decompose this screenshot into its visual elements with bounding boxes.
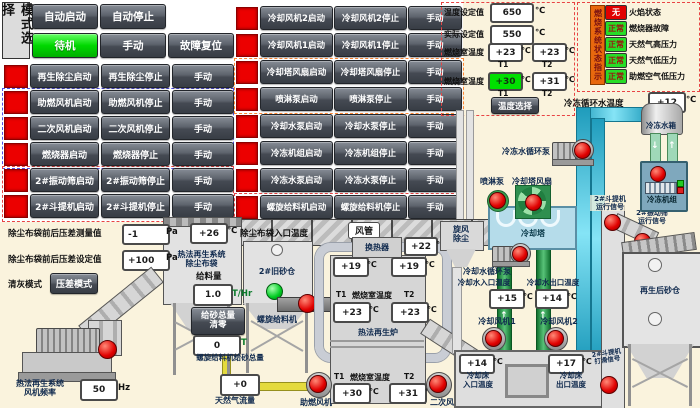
furnace-top-t1-unit: ℃ [367, 260, 377, 269]
elevator-manual-button[interactable]: 手动 [172, 194, 234, 218]
chiller-green-lamp [677, 180, 684, 187]
indicator-sec-fan [4, 117, 28, 140]
cool-fan2-label: 冷却风机2 [536, 317, 582, 326]
temp-setpoint-value[interactable]: 650 [490, 3, 534, 23]
temp-select-button[interactable]: 温度选择 [491, 97, 539, 114]
feed-total-label: 螺旋给料机给砂总量 [188, 354, 272, 363]
cooling-bed-window [505, 364, 549, 398]
chilled-water-temp-unit: ℃ [686, 95, 696, 105]
combustion-status-title: 燃烧系统状态指示 [590, 5, 605, 85]
burner-manual-button[interactable]: 手动 [172, 142, 234, 166]
furnace-mid-t1-unit: ℃ [369, 305, 379, 314]
hmi-screen: 模式选择 自动启动 自动停止 待机 手动 故障复位 再生除尘启动 再生除尘停止 … [0, 0, 700, 408]
chiller-stop-button[interactable]: 冷冻机组停止 [334, 141, 407, 165]
flow-up-arrow-icon: ↑ [668, 142, 676, 151]
temp-setpoint-label: 温度设定值 [444, 7, 484, 18]
bed-in-temp-unit: ℃ [493, 357, 503, 366]
chamber-temp-upper-label: 燃烧室温度 [444, 47, 484, 58]
mode-select-title: 模式选择 [2, 2, 30, 59]
cool-fan1-stop-button[interactable]: 冷却风机1停止 [334, 33, 407, 57]
furnace-low-t1-unit: ℃ [369, 387, 379, 396]
chilled-pump-start-button[interactable]: 冷冻水泵启动 [260, 168, 333, 192]
regen-fan-indicator [98, 340, 117, 359]
sec-fan-manual-button[interactable]: 手动 [172, 116, 234, 140]
burner-fault-badge: 正常 [605, 21, 627, 36]
feed-rate-value: 1.0 [193, 284, 233, 306]
auto-stop-button[interactable]: 自动停止 [100, 4, 166, 29]
clean-mode-label: 清灰模式 [8, 278, 42, 290]
feed-total-unit: T [241, 338, 247, 348]
indicator-spray-pump [236, 88, 258, 111]
furnace-mid-t2-value: +23 [391, 302, 429, 323]
indicator-comb-fan [4, 91, 28, 114]
indicator-tower-fan [236, 61, 258, 84]
chamber-temp-lower-label: 燃烧室温度 [444, 76, 484, 87]
standby-button[interactable]: 待机 [32, 33, 98, 58]
manual-mode-button[interactable]: 手动 [100, 33, 166, 58]
screen-start-button[interactable]: 2#振动筛启动 [30, 168, 99, 192]
cooling-tower-label: 冷却塔 [516, 229, 550, 238]
indicator-cool-fan1 [236, 34, 258, 57]
silo-porthole [648, 258, 662, 272]
chamber-upper-t2-tag: T2 [542, 60, 552, 69]
spray-pump-start-button[interactable]: 喷淋泵启动 [260, 87, 333, 111]
screw-feeder-manual-button[interactable]: 手动 [408, 195, 462, 219]
indicator-chilled-pump [236, 169, 258, 192]
elevator-run-indicator [604, 214, 621, 231]
cool-fan2-stop-button[interactable]: 冷却风机2停止 [334, 6, 407, 30]
chilled-water-temp-label: 冷冻循环水温度 [564, 97, 624, 109]
sec-fan-indicator [429, 375, 447, 393]
indicator-chiller [236, 142, 258, 165]
silo-porthole [648, 312, 662, 326]
comb-fan-start-button[interactable]: 助燃风机启动 [30, 90, 99, 114]
indicator-screen [4, 169, 28, 192]
water-in-label: 冷却水入口温度 [455, 279, 513, 288]
bed-in-temp-label: 冷却床 入口温度 [455, 372, 501, 389]
screen-stop-button[interactable]: 2#振动筛停止 [101, 168, 170, 192]
chilled-pump-base [552, 159, 594, 166]
chamber-upper-t1-unit: ℃ [521, 46, 531, 55]
furnace-divider [330, 346, 424, 348]
comb-air-low-pressure-label: 助燃空气低压力 [629, 71, 685, 82]
cool-pump-start-button[interactable]: 冷却水泵启动 [260, 114, 333, 138]
flame-state-badge: 无 [605, 5, 627, 20]
actual-temp-unit: ℃ [535, 28, 545, 38]
elevator-slip-indicator [600, 376, 618, 394]
furnace-low-chamber-label: 燃烧室温度 [350, 372, 390, 383]
furnace-name-label: 热法再生炉 [350, 328, 406, 337]
chamber-lower-t1-unit: ℃ [521, 75, 531, 84]
screw-feeder-start-button[interactable]: 螺旋给料机启动 [260, 195, 333, 219]
dp-measured-value: -1 [122, 224, 170, 245]
regen-sand-silo-label: 再生后砂仓 [628, 286, 692, 295]
chilled-pump-stop-button[interactable]: 冷冻水泵停止 [334, 168, 407, 192]
furnace-top-t1-value: +19 [333, 257, 369, 277]
chiller-manual-button[interactable]: 手动 [408, 141, 462, 165]
tower-fan-indicator [525, 194, 542, 211]
cyclone-label: 旋风 除尘 [446, 225, 476, 243]
dp-measured-unit: Pa [166, 227, 178, 237]
dp-setpoint-value[interactable]: +100 [122, 250, 170, 271]
tower-fan-stop-button[interactable]: 冷却塔风扇停止 [334, 60, 407, 84]
baghouse-leg [173, 303, 176, 375]
bag-inlet-temp-unit: ℃ [227, 226, 237, 236]
comb-fan-label: 助燃风机 [294, 398, 338, 407]
fault-reset-button[interactable]: 故障复位 [168, 33, 234, 58]
furnace-mid-t1-tag: T1 [336, 290, 346, 299]
chilled-water-tank-label: 冷冻水箱 [643, 122, 679, 131]
screen-manual-button[interactable]: 手动 [172, 168, 234, 192]
gas-flow-label: 天然气流量 [210, 396, 260, 405]
comb-air-low-pressure-badge: 正常 [605, 69, 627, 84]
feed-rate-label: 给料量 [196, 270, 222, 282]
auto-start-button[interactable]: 自动启动 [32, 4, 98, 29]
dp-setpoint-unit: Pa [166, 253, 178, 263]
bag-inlet-temp-label: 除尘布袋入口温度 [240, 227, 308, 239]
furnace-mid-t2-tag: T2 [404, 290, 414, 299]
furnace-mid-t1-value: +23 [333, 302, 371, 323]
heat-exchanger-label: 换热器 [365, 243, 389, 252]
furnace-mid-chamber-label: 燃烧室温度 [352, 290, 392, 301]
chamber-lower-t2-tag: T2 [542, 89, 552, 98]
indicator-burner [4, 143, 28, 166]
fan-freq-unit: Hz [118, 383, 130, 393]
chiller-unit-label: 冷冻机组 [641, 196, 683, 205]
furnace-top-t2-unit: ℃ [425, 260, 435, 269]
gas-flow-value: +0 [220, 374, 260, 396]
clean-mode-button[interactable]: 压差模式 [50, 273, 98, 294]
regen-dust-start-button[interactable]: 再生除尘启动 [30, 64, 99, 88]
chiller-start-button[interactable]: 冷冻机组启动 [260, 141, 333, 165]
regen-silo-leg [689, 344, 692, 406]
silo-vent [271, 244, 283, 256]
bag-inlet-temp-value: +26 [190, 223, 228, 244]
dp-measured-label: 除尘布袋前后压差测量值 [8, 227, 102, 239]
burner-fault-label: 燃烧器故障 [629, 23, 669, 34]
cool-pump-label: 冷却水循环泵 [461, 267, 513, 276]
spray-pump-indicator [489, 192, 506, 209]
sec-fan-start-button[interactable]: 二次风机启动 [30, 116, 99, 140]
bed-out-temp-unit: ℃ [582, 357, 592, 366]
actual-temp-value: 550 [490, 25, 534, 45]
silo-leg [305, 303, 308, 373]
cool-fan2-start-button[interactable]: 冷却风机2启动 [260, 6, 333, 30]
chilled-pump-label: 冷冻水循环泵 [500, 147, 552, 156]
sec-fan-stop-button[interactable]: 二次风机停止 [101, 116, 170, 140]
regen-dust-manual-button[interactable]: 手动 [172, 64, 234, 88]
elevator-run-signal-label: 2#斗提机 运行信号 [590, 195, 630, 211]
flame-state-label: 火焰状态 [629, 7, 661, 18]
actual-temp-label: 实际设定值 [444, 29, 484, 40]
indicator-cool-pump [236, 115, 258, 138]
exchanger-out-temp-value: +22 [404, 237, 438, 256]
furnace-low-t2-value: +31 [389, 383, 427, 404]
spray-pump-stop-button[interactable]: 喷淋泵停止 [334, 87, 407, 111]
water-out-label: 冷却水出口温度 [524, 279, 582, 288]
furnace-low-t1-tag: T1 [334, 372, 344, 381]
bed-out-temp-label: 冷却床 出口温度 [548, 372, 594, 389]
cool-fan1-start-button[interactable]: 冷却风机1启动 [260, 33, 333, 57]
furnace-low-t1-value: +30 [333, 383, 371, 404]
cool-pump-manual-button[interactable]: 手动 [408, 114, 462, 138]
chiller-indicator [650, 166, 666, 182]
water-out-unit: ℃ [567, 292, 577, 301]
cool-fan2-indicator [547, 330, 564, 347]
cool-pump-indicator [512, 246, 528, 262]
chilled-pump-manual-button[interactable]: 手动 [408, 168, 462, 192]
chiller-vents [645, 182, 677, 194]
chamber-upper-t2-unit: ℃ [565, 46, 575, 55]
comb-fan-stop-button[interactable]: 助燃风机停止 [101, 90, 170, 114]
burner-start-button[interactable]: 燃烧器启动 [30, 142, 99, 166]
burner-stop-button[interactable]: 燃烧器停止 [101, 142, 170, 166]
fan-freq-value: 50 [80, 379, 118, 401]
furnace-mid-t2-unit: ℃ [427, 305, 437, 314]
flow-down-arrow-icon: ↓ [651, 142, 659, 151]
water-out-value: +14 [535, 289, 569, 309]
water-in-value: +15 [489, 289, 525, 309]
elevator-start-button[interactable]: 2#斗提机启动 [30, 194, 99, 218]
dp-setpoint-label: 除尘布袋前后压差设定值 [8, 253, 102, 265]
indicator-cool-fan2 [236, 7, 258, 30]
furnace-divider [330, 340, 424, 342]
chiller-red-lamp [677, 187, 684, 194]
chilled-pump-indicator [574, 142, 591, 159]
old-sand-silo-label: 2#旧砂仓 [248, 267, 306, 276]
feed-total-reset-button[interactable]: 给砂总量 清零 [191, 307, 245, 335]
indicator-elevator [4, 195, 28, 218]
screw-feeder-label: 螺旋给料机 [250, 315, 304, 324]
heat-exchanger: 换热器 [352, 237, 402, 258]
furnace-top-t2-value: +19 [391, 257, 427, 277]
gas-low-pressure-badge: 正常 [605, 53, 627, 68]
regen-silo-leg [628, 344, 631, 406]
tower-fan-start-button[interactable]: 冷却塔风扇启动 [260, 60, 333, 84]
regen-dust-stop-button[interactable]: 再生除尘停止 [101, 64, 170, 88]
fan-freq-label: 热法再生系统 风机频率 [4, 379, 76, 397]
cool-fan1-label: 冷却风机1 [474, 317, 520, 326]
gas-high-pressure-label: 天然气高压力 [629, 39, 677, 50]
water-in-unit: ℃ [523, 292, 533, 301]
chamber-lower-t2-unit: ℃ [565, 75, 575, 84]
cool-fan1-indicator [485, 330, 502, 347]
feed-rate-unit: T/Hr [232, 289, 252, 299]
indicator-regen-dust [4, 65, 28, 88]
gas-high-pressure-badge: 正常 [605, 37, 627, 52]
comb-fan-indicator [309, 375, 327, 393]
indicator-screw-feeder [236, 196, 258, 219]
furnace-low-t2-tag: T2 [404, 372, 414, 381]
chamber-upper-t1-tag: T1 [498, 60, 508, 69]
cool-pump-stop-button[interactable]: 冷却水泵停止 [334, 114, 407, 138]
temp-setpoint-unit: ℃ [535, 6, 545, 16]
gas-low-pressure-label: 天然气低压力 [629, 55, 677, 66]
comb-fan-manual-button[interactable]: 手动 [172, 90, 234, 114]
elevator-stop-button[interactable]: 2#斗提机停止 [101, 194, 170, 218]
spray-pump-label: 喷淋泵 [475, 177, 509, 186]
screw-feeder-stop-button[interactable]: 螺旋给料机停止 [334, 195, 407, 219]
